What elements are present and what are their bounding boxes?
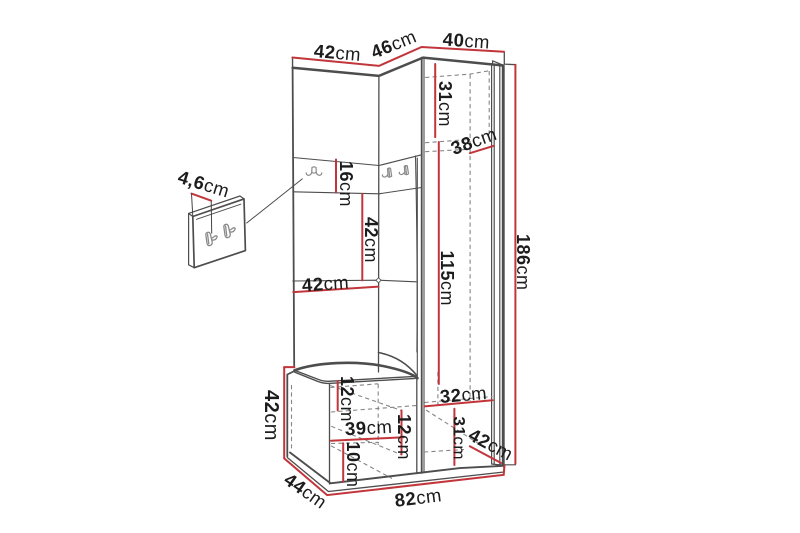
- svg-text:40cm: 40cm: [442, 28, 491, 52]
- svg-text:4,6cm: 4,6cm: [176, 166, 233, 202]
- svg-text:42cm: 42cm: [260, 390, 282, 441]
- svg-text:12cm: 12cm: [337, 376, 357, 422]
- svg-text:46cm: 46cm: [368, 25, 420, 62]
- svg-text:16cm: 16cm: [336, 161, 356, 207]
- svg-text:31cm: 31cm: [435, 81, 455, 127]
- svg-text:12cm: 12cm: [394, 414, 414, 460]
- svg-text:42cm: 42cm: [361, 217, 381, 263]
- svg-text:10cm: 10cm: [343, 442, 363, 488]
- svg-text:42cm: 42cm: [313, 40, 362, 65]
- svg-text:115cm: 115cm: [437, 251, 457, 307]
- svg-text:31cm: 31cm: [450, 417, 469, 461]
- svg-text:44cm: 44cm: [280, 469, 331, 513]
- svg-text:32cm: 32cm: [439, 382, 488, 407]
- svg-text:82cm: 82cm: [393, 484, 442, 511]
- svg-text:42cm: 42cm: [301, 271, 350, 295]
- svg-text:186cm: 186cm: [513, 234, 533, 291]
